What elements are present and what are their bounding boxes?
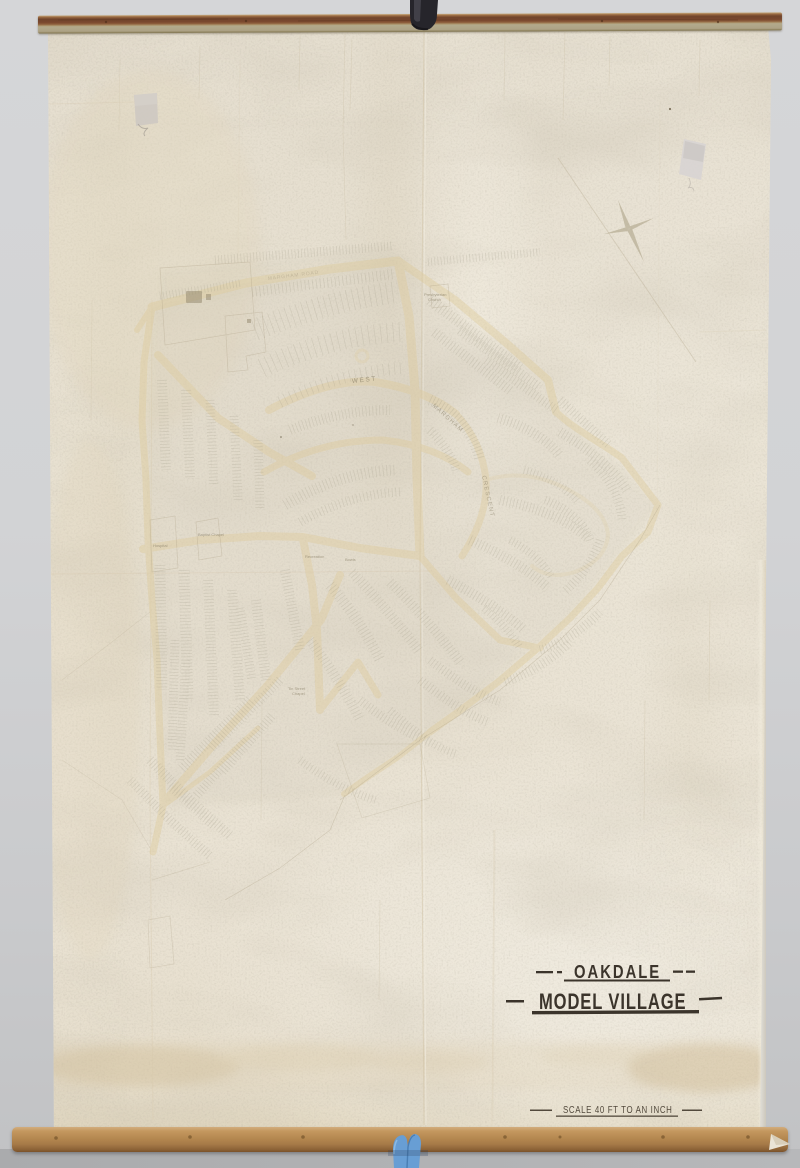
svg-text:Bowls: Bowls <box>345 557 356 562</box>
svg-text:Church: Church <box>428 297 441 302</box>
svg-text:Hospital: Hospital <box>153 543 168 548</box>
svg-text:SCALE 40 FT TO AN INCH: SCALE 40 FT TO AN INCH <box>563 1104 673 1115</box>
svg-text:Chapel: Chapel <box>292 691 305 696</box>
svg-text:OAKDALE: OAKDALE <box>574 961 661 982</box>
svg-text:Recreation: Recreation <box>305 554 324 559</box>
svg-text:Baptist Chapel: Baptist Chapel <box>198 532 224 537</box>
